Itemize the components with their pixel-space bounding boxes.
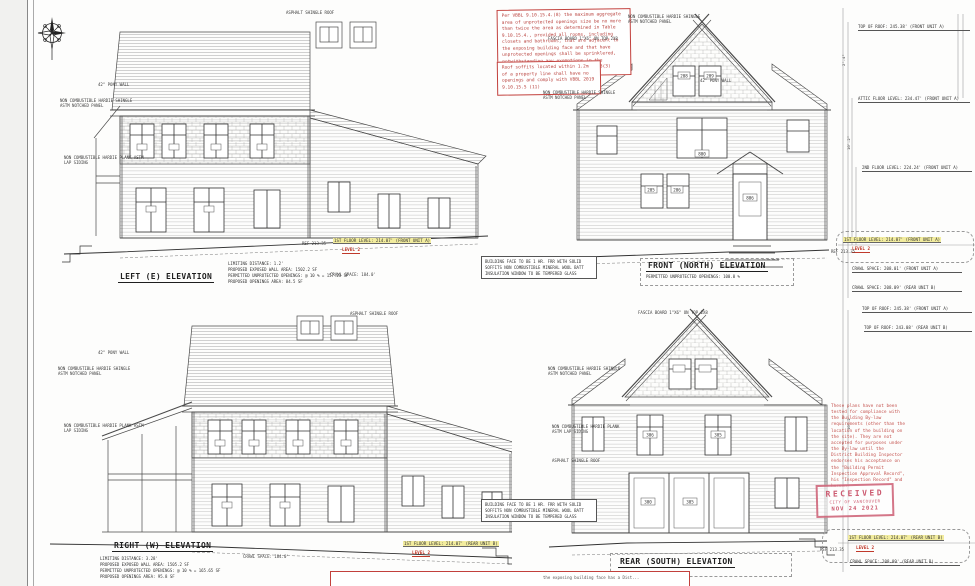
window-tag: 300 xyxy=(644,500,652,505)
received-stamp: RECEIVED CITY OF VANCOUVER NOV 24 2021 xyxy=(816,483,895,518)
level-crawl-rear-2: CRAWL SPACE: 208.09' (REAR UNIT B) xyxy=(850,559,960,566)
label-lap-siding-left: NON COMBUSTIBLE HARDIE PLANK ASTM LAP SI… xyxy=(64,155,144,165)
front-elevation-title: FRONT (NORTH) ELEVATION xyxy=(646,261,768,272)
fire-note-text: BUILDING FACE TO BE 1 HR. FRR WITH SOLID… xyxy=(485,259,584,276)
fire-note-box-lower: BUILDING FACE TO BE 1 HR. FRR WITH SOLID… xyxy=(481,499,597,522)
window-tag: 306 xyxy=(646,433,654,438)
label-asphalt-roof-left: ASPHALT SHINGLE ROOF xyxy=(286,10,346,15)
crawl-184-left: CRAWL SPACE: 184.0' xyxy=(330,272,376,277)
window-tag: 305 xyxy=(686,500,694,505)
label-shingle-panel-rear: NON COMBUSTIBLE HARDIE SHINGLE ASTM NOTC… xyxy=(548,366,626,376)
window-tag: 206 xyxy=(673,188,681,193)
label-lap-siding-rear: NON COMBUSTIBLE HARDIE PLANK ASTM LAP SI… xyxy=(552,424,630,434)
stamp-city-text: CITY OF VANCOUVER xyxy=(820,498,890,505)
label-fascia-front: FASCIA BOARD 1"X6" ON TOP 2X8 xyxy=(548,36,626,41)
level-top-roof-front: TOP OF ROOF: 245.38' (FRONT UNIT A) xyxy=(858,24,970,31)
level-attic-floor: ATTIC FLOOR LEVEL: 234.47' (FRONT UNIT A… xyxy=(858,96,970,103)
window-tag: 806 xyxy=(746,196,754,201)
front-elevation-sub: PERMITTED UNPROTECTED OPENINGS: 100.0 % xyxy=(646,274,740,279)
sheet-left-margin xyxy=(0,0,27,586)
stat-line: PROPOSED OPENINGS AREA: 84.5 SF xyxy=(228,279,348,285)
right-elevation-title: RIGHT (W) ELEVATION xyxy=(112,541,213,552)
rear-elevation-drawing: 306 305 300 305 xyxy=(537,303,837,583)
ref-elevation: REF 213.35 xyxy=(820,547,844,552)
level-second-floor: 2ND FLOOR LEVEL: 224.24' (FRONT UNIT A) xyxy=(862,165,972,172)
stamp-date-text: NOV 24 2021 xyxy=(820,505,890,513)
stat-line: PROPOSED OPENINGS AREA: 95.8 SF xyxy=(100,574,220,580)
label-pony-wall-right: 42" PONY WALL xyxy=(98,350,148,355)
bottom-red-note-box: the exposing building face has a Dist... xyxy=(330,571,690,586)
level-top-roof-front-2: TOP OF ROOF: 245.38' (FRONT UNIT A) xyxy=(862,306,972,313)
soffit-note-text: Roof soffits located within 1.2m of a pr… xyxy=(502,64,594,90)
label-asphalt-roof-rear: ASPHALT SHINGLE ROOF xyxy=(552,458,612,463)
label-fascia-rear: FASCIA BOARD 1"X6" ON TOP 2X8 xyxy=(638,310,716,315)
label-asphalt-roof-right: ASPHALT SHINGLE ROOF xyxy=(350,311,410,316)
bottom-red-note-text: the exposing building face has a Dist... xyxy=(543,575,639,580)
window-tag: 305 xyxy=(714,433,722,438)
label-pony-wall-left: 42" PONY WALL xyxy=(98,82,148,87)
level-first-floor-front-mid: 1ST FLOOR LEVEL: 214.07' (FRONT UNIT A) xyxy=(333,238,431,244)
label-shingle-panel-left: NON COMBUSTIBLE HARDIE SHINGLE ASTM NOTC… xyxy=(60,98,140,108)
crawl-184-right: CRAWL SPACE: 184.0' xyxy=(243,554,289,559)
drawing-sheet: 208 209 800 806 205 206 xyxy=(0,0,975,586)
window-tag: 205 xyxy=(647,188,655,193)
label-lap-siding-right: NON COMBUSTIBLE HARDIE PLANK ASTM LAP SI… xyxy=(64,423,144,433)
level2-tag: LEVEL 2 xyxy=(856,546,874,552)
level-first-floor-rear-mid: 1ST FLOOR LEVEL: 214.07' (REAR UNIT B) xyxy=(403,541,499,547)
ref-elevation-mid: REF 213.35 xyxy=(302,241,326,246)
window-tag: 208 xyxy=(680,74,688,79)
label-shingle-panel-front-side: NON COMBUSTIBLE HARDIE SHINGLE ASTM NOTC… xyxy=(543,90,621,100)
fire-note-text: BUILDING FACE TO BE 1 HR. FRR WITH SOLID… xyxy=(485,502,584,519)
level2-tag: LEVEL 2 xyxy=(342,248,360,254)
label-pony-wall-front: 42" PONY WALL xyxy=(700,78,750,83)
level-crawl-front: CRAWL SPACE: 208.01' (FRONT UNIT A) xyxy=(852,266,962,273)
level-first-floor-front: 1ST FLOOR LEVEL: 214.07' (FRONT UNIT A) xyxy=(843,237,941,243)
right-elevation-stats: LIMITING DISTANCE: 3.28' PROPOSED EXPOSE… xyxy=(100,556,220,580)
label-shingle-panel-front-top: NON COMBUSTIBLE HARDIE SHINGLE ASTM NOTC… xyxy=(628,14,708,24)
sheet-border-line xyxy=(27,0,28,586)
left-elevation-drawing xyxy=(58,6,503,298)
ref-elevation: REF 213.35 xyxy=(831,249,855,254)
dim-vertical-2: 2'-4" xyxy=(841,54,846,66)
dim-vertical-1: 10'-2" xyxy=(846,136,851,150)
level-top-roof-rear: TOP OF ROOF: 243.08' (REAR UNIT B) xyxy=(864,325,972,332)
left-elevation-title: LEFT (E) ELEVATION xyxy=(118,272,214,283)
level-first-floor-rear: 1ST FLOOR LEVEL: 214.07' (REAR UNIT B) xyxy=(848,535,944,541)
label-shingle-panel-right: NON COMBUSTIBLE HARDIE SHINGLE ASTM NOTC… xyxy=(58,366,138,376)
rear-elevation-title: REAR (SOUTH) ELEVATION xyxy=(618,557,735,568)
city-disclaimer-text: These plans have not been tested for com… xyxy=(831,404,905,490)
sheet-border-inner-line xyxy=(33,0,34,586)
window-tag: 800 xyxy=(698,152,706,157)
stamp-received-text: RECEIVED xyxy=(820,488,890,499)
level-crawl-rear: CRAWL SPACE: 208.09' (REAR UNIT B) xyxy=(852,285,962,292)
level2-tag: LEVEL 2 xyxy=(412,551,430,557)
fire-note-box-upper: BUILDING FACE TO BE 1 HR. FRR WITH SOLID… xyxy=(481,256,597,279)
